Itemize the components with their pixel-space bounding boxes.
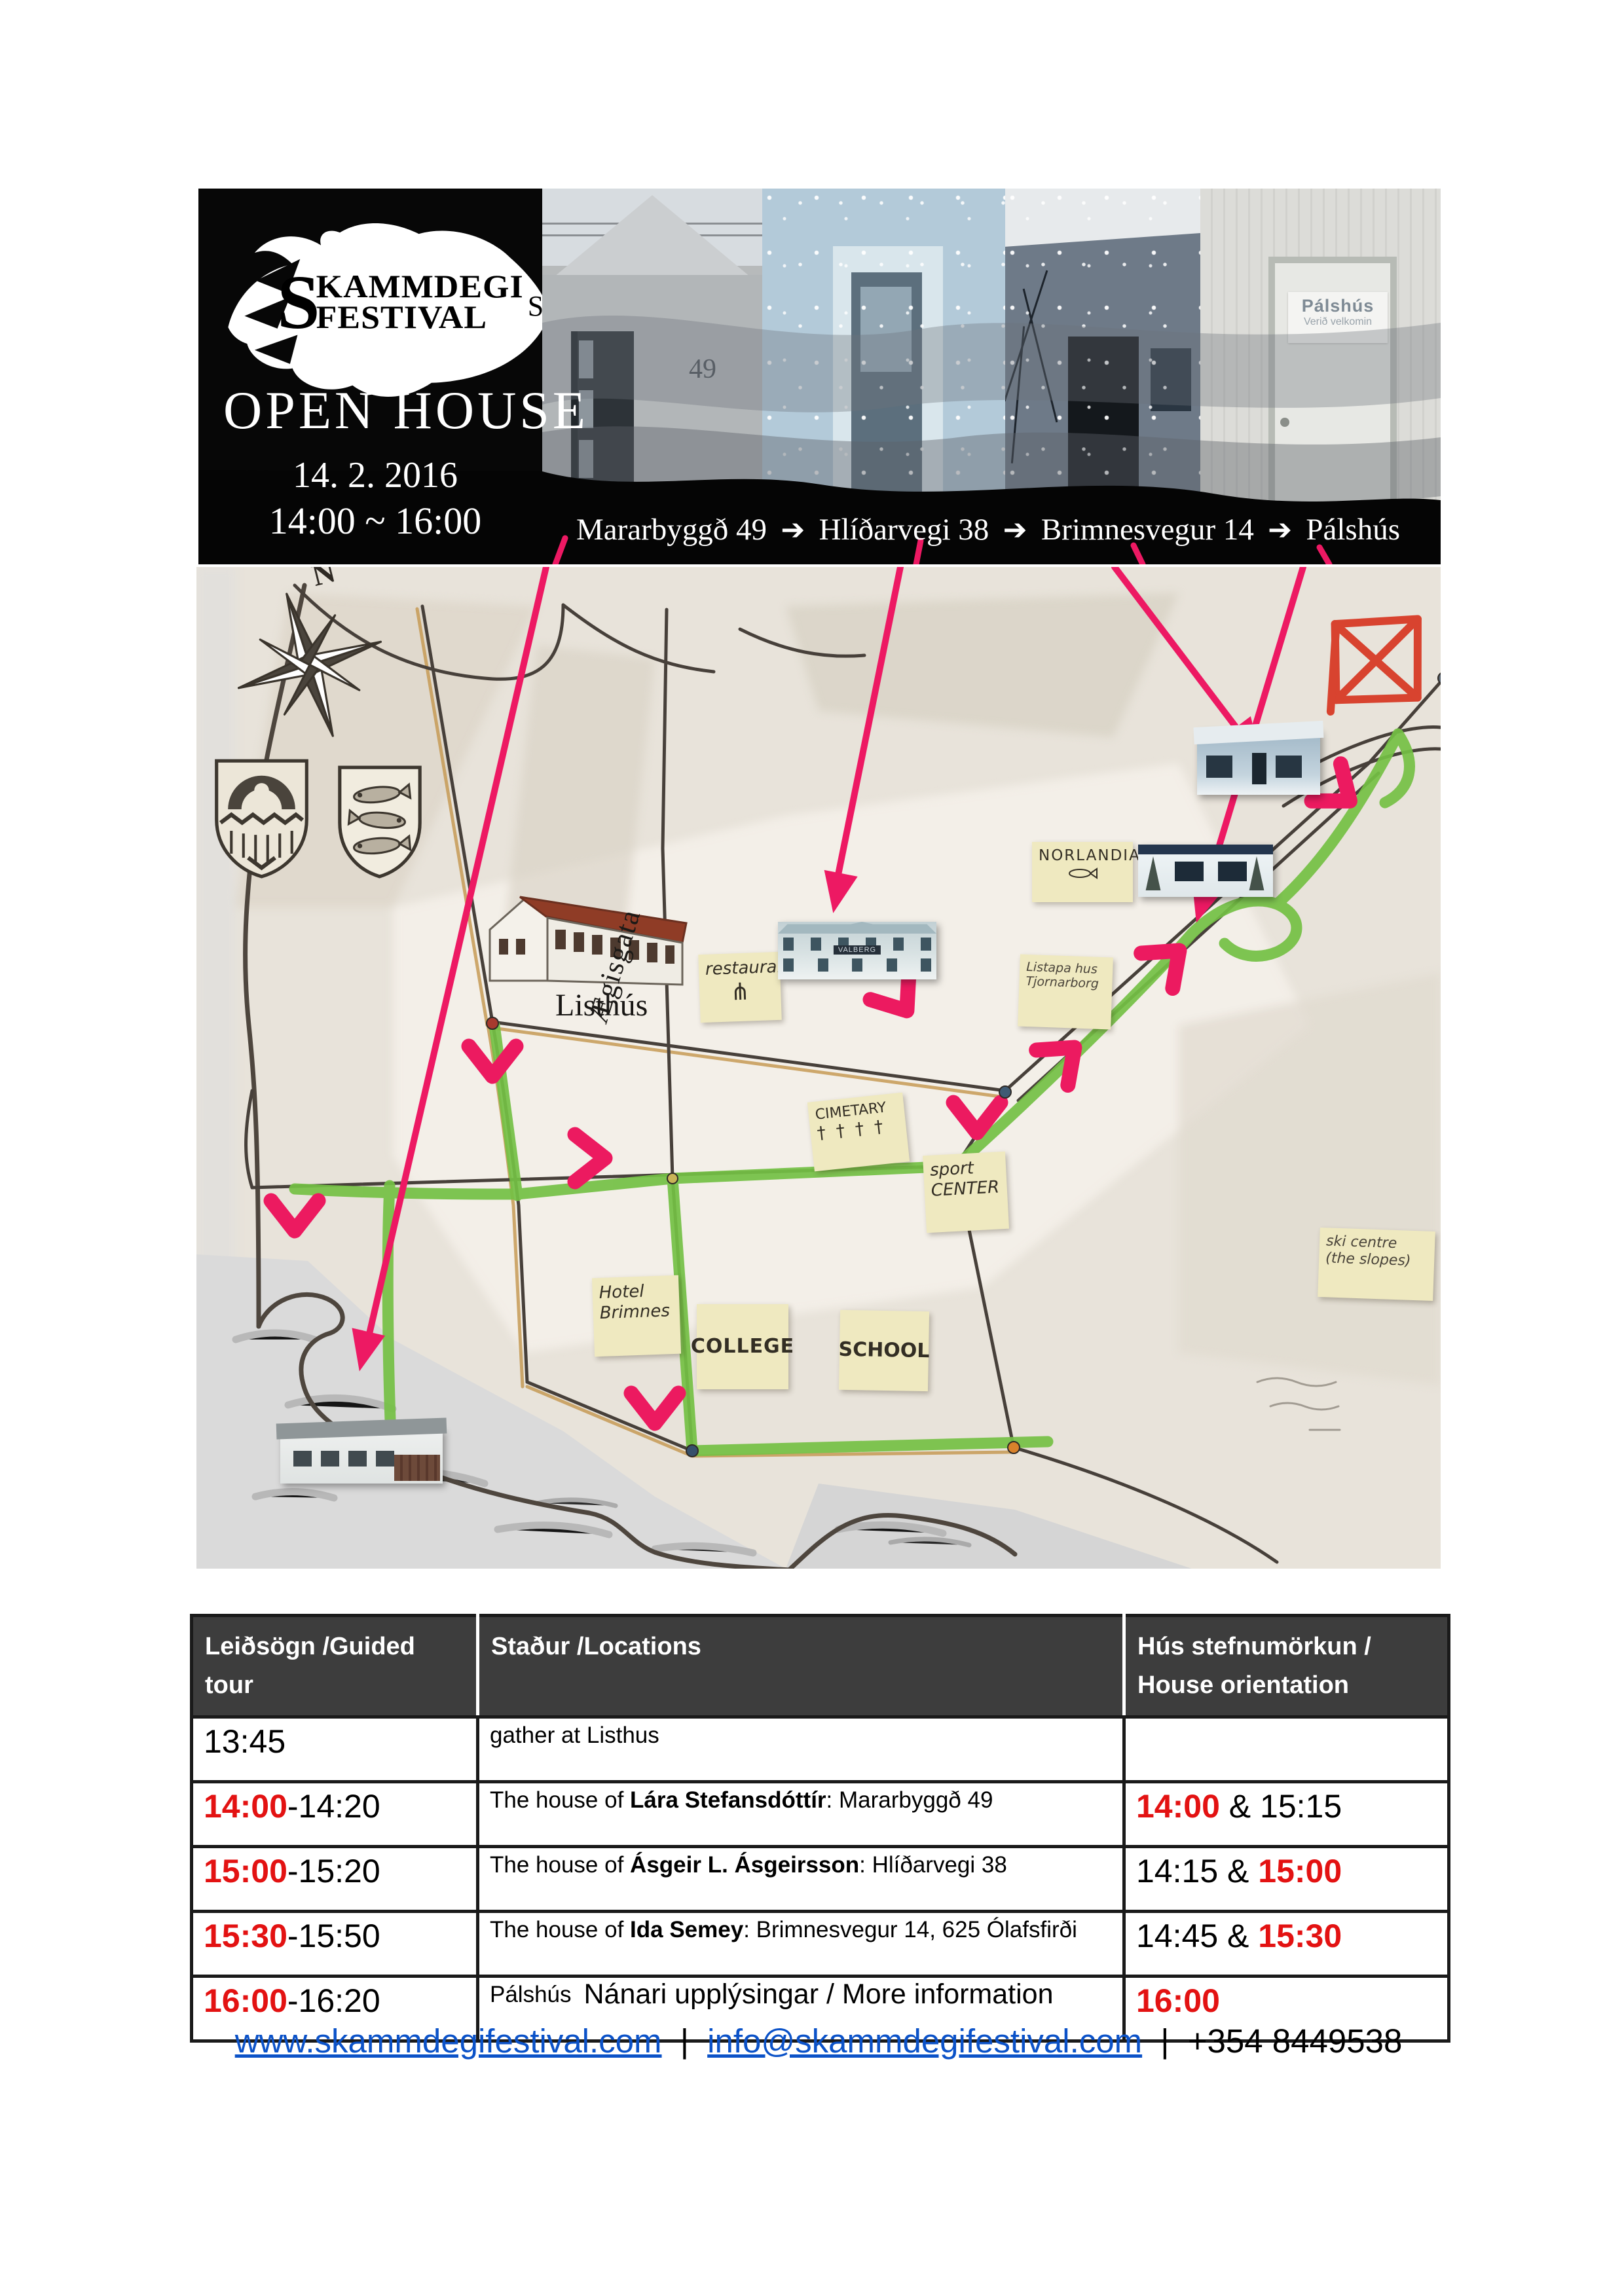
- photo-brimnesvegur-14: [1005, 189, 1200, 564]
- window: [1218, 862, 1247, 881]
- event-time: 14:00 ~ 16:00: [212, 499, 539, 543]
- cell-orientation: 14:15 & 15:00: [1124, 1846, 1449, 1911]
- map-photo-brimnesvegur-house: [1138, 845, 1273, 897]
- event-date: 14. 2. 2016: [238, 454, 513, 496]
- listhus-building: [482, 889, 698, 994]
- open-house-poster: S KAMMDEGI FESTIVAL Shátið OPEN HOUSE 14…: [0, 0, 1624, 2296]
- sticky-note-norlandia: NORLANDIA: [1032, 842, 1133, 902]
- fish-icon: [1065, 867, 1099, 879]
- compass-rose-icon: N: [228, 567, 392, 746]
- cell-location: The house of Ásgeir L. Ásgeirsson: Hlíða…: [478, 1846, 1124, 1911]
- event-title: OPEN HOUSE: [223, 380, 589, 441]
- route-arrow-icon: ➔: [1254, 513, 1306, 547]
- window: [1175, 862, 1204, 881]
- schedule-row: 13:45gather at Listhus: [192, 1717, 1449, 1781]
- tree: [1143, 856, 1163, 890]
- photo-palshus: Pálshús Verið velkomin: [1200, 189, 1441, 564]
- shield-sun-icon: [211, 756, 312, 880]
- door: [1252, 753, 1266, 784]
- separator: |: [671, 2022, 698, 2060]
- shield-fish-icon: [334, 762, 426, 880]
- window: [321, 1451, 339, 1467]
- schedule-row: 15:30-15:50The house of Ida Semey: Brimn…: [192, 1911, 1449, 1976]
- logo-line2: FESTIVAL: [316, 304, 524, 333]
- sticky-note-hotel-brimnes: Hotel Brimnes: [592, 1275, 681, 1357]
- fence: [394, 1455, 440, 1481]
- falling-snow: [1005, 189, 1200, 564]
- window: [1276, 756, 1302, 778]
- sticky-note-college: COLLEGE: [697, 1304, 788, 1389]
- schedule-header-row: Leiðsögn /Guided tour Staður /Locations …: [192, 1616, 1449, 1717]
- cell-tour-time: 13:45: [192, 1717, 478, 1781]
- map-photo-start-house: [280, 1429, 443, 1484]
- window: [293, 1451, 312, 1467]
- logo-letter: S: [277, 271, 320, 335]
- route-arrow-icon: ➔: [989, 513, 1041, 547]
- sign-subtitle: Verið velkomin: [1288, 316, 1388, 328]
- cell-tour-time: 15:30-15:50: [192, 1911, 478, 1976]
- cell-tour-time: 15:00-15:20: [192, 1846, 478, 1911]
- route-stop: Hlíðarvegi 38: [819, 513, 989, 547]
- falling-snow: [762, 189, 1005, 564]
- sticky-note-cemetery: CIMETARY † † † †: [807, 1093, 910, 1172]
- cell-orientation: [1124, 1717, 1449, 1781]
- house-number: 49: [689, 354, 716, 385]
- door-knob: [1280, 418, 1289, 427]
- cell-tour-time: 14:00-14:20: [192, 1781, 478, 1846]
- photo-hlidarvegi-38: [762, 189, 1005, 564]
- palshus-door-sign: Pálshús Verið velkomin: [1288, 292, 1388, 343]
- route-line: Mararbyggð 49 ➔ Hlíðarvegi 38 ➔ Brimnesv…: [536, 512, 1441, 547]
- tree: [1247, 856, 1266, 890]
- more-info-label: Nánari upplýsingar / More information: [190, 1978, 1447, 2011]
- route-arrow-icon: ➔: [767, 513, 819, 547]
- roof: [778, 922, 936, 934]
- roof: [1138, 845, 1273, 854]
- logo-line1: KAMMDEGI: [316, 272, 524, 302]
- tour-map: N: [196, 567, 1441, 1569]
- map-photo-mararbyggd-house: [1197, 729, 1320, 795]
- header-banner: S KAMMDEGI FESTIVAL Shátið OPEN HOUSE 14…: [198, 189, 1441, 564]
- route-stop: Brimnesvegur 14: [1041, 513, 1254, 547]
- sticky-note-ski-centre: ski centre (the slopes): [1318, 1228, 1435, 1301]
- house-photo-strip: 49 Pálshús V: [542, 189, 1441, 564]
- valberg-sign: VALBERG: [834, 945, 881, 955]
- separator: |: [1151, 2022, 1178, 2060]
- sticky-note-tjarnarborg: Listapa hus Tjornarborg: [1018, 955, 1113, 1030]
- compass-north-label: N: [308, 567, 339, 593]
- cell-orientation: 14:00 & 15:15: [1124, 1781, 1449, 1846]
- email-link[interactable]: info@skammdegifestival.com: [707, 2022, 1142, 2060]
- cell-orientation: 14:45 & 15:30: [1124, 1911, 1449, 1976]
- fork-icon: ⋔: [706, 977, 775, 1008]
- map-photo-valberg-house: VALBERG: [778, 922, 936, 979]
- cell-location: gather at Listhus: [478, 1717, 1124, 1781]
- route-stop: Pálshús: [1306, 513, 1400, 547]
- photo-mararbyggd-49: 49: [542, 189, 762, 564]
- sign-title: Pálshús: [1288, 296, 1388, 316]
- sticky-note-school: SCHOOL: [839, 1310, 929, 1391]
- phone-number: +354 8449538: [1188, 2022, 1403, 2060]
- route-stop: Mararbyggð 49: [576, 513, 767, 547]
- window: [1206, 756, 1232, 778]
- contact-line: www.skammdegifestival.com | info@skammde…: [98, 2022, 1539, 2060]
- cell-location: The house of Ida Semey: Brimnesvegur 14,…: [478, 1911, 1124, 1976]
- house-gable: [554, 195, 750, 277]
- schedule-row: 15:00-15:20The house of Ásgeir L. Ásgeir…: [192, 1846, 1449, 1911]
- window: [376, 1451, 394, 1467]
- header-locations: Staður /Locations: [478, 1616, 1124, 1717]
- header-guided-tour: Leiðsögn /Guided tour: [192, 1616, 478, 1717]
- window: [348, 1451, 367, 1467]
- cell-location: The house of Lára Stefansdóttír: Mararby…: [478, 1781, 1124, 1846]
- header-house-orientation: Hús stefnumörkun / House orientation: [1124, 1616, 1449, 1717]
- schedule-row: 14:00-14:20The house of Lára Stefansdótt…: [192, 1781, 1449, 1846]
- x-marker: [1331, 616, 1420, 715]
- sticky-note-restaurant: restaurant ⋔: [698, 952, 782, 1023]
- website-link[interactable]: www.skammdegifestival.com: [235, 2022, 662, 2060]
- festival-logo: S KAMMDEGI FESTIVAL Shátið: [217, 220, 570, 384]
- sticky-note-sport-center: sport CENTER: [923, 1152, 1009, 1233]
